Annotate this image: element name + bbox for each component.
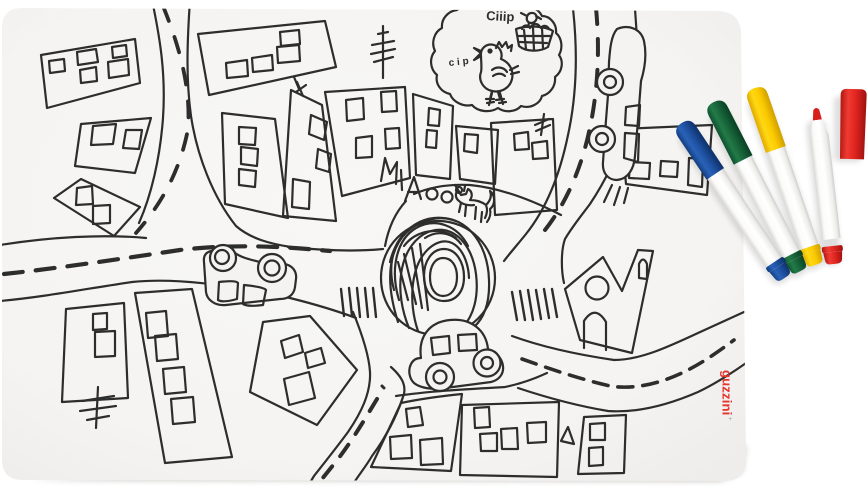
svg-text:Ciiip: Ciiip xyxy=(486,8,515,24)
svg-text:guzzini: guzzini xyxy=(720,370,735,415)
svg-text:c i p: c i p xyxy=(448,56,469,69)
svg-text:+: + xyxy=(726,417,732,421)
